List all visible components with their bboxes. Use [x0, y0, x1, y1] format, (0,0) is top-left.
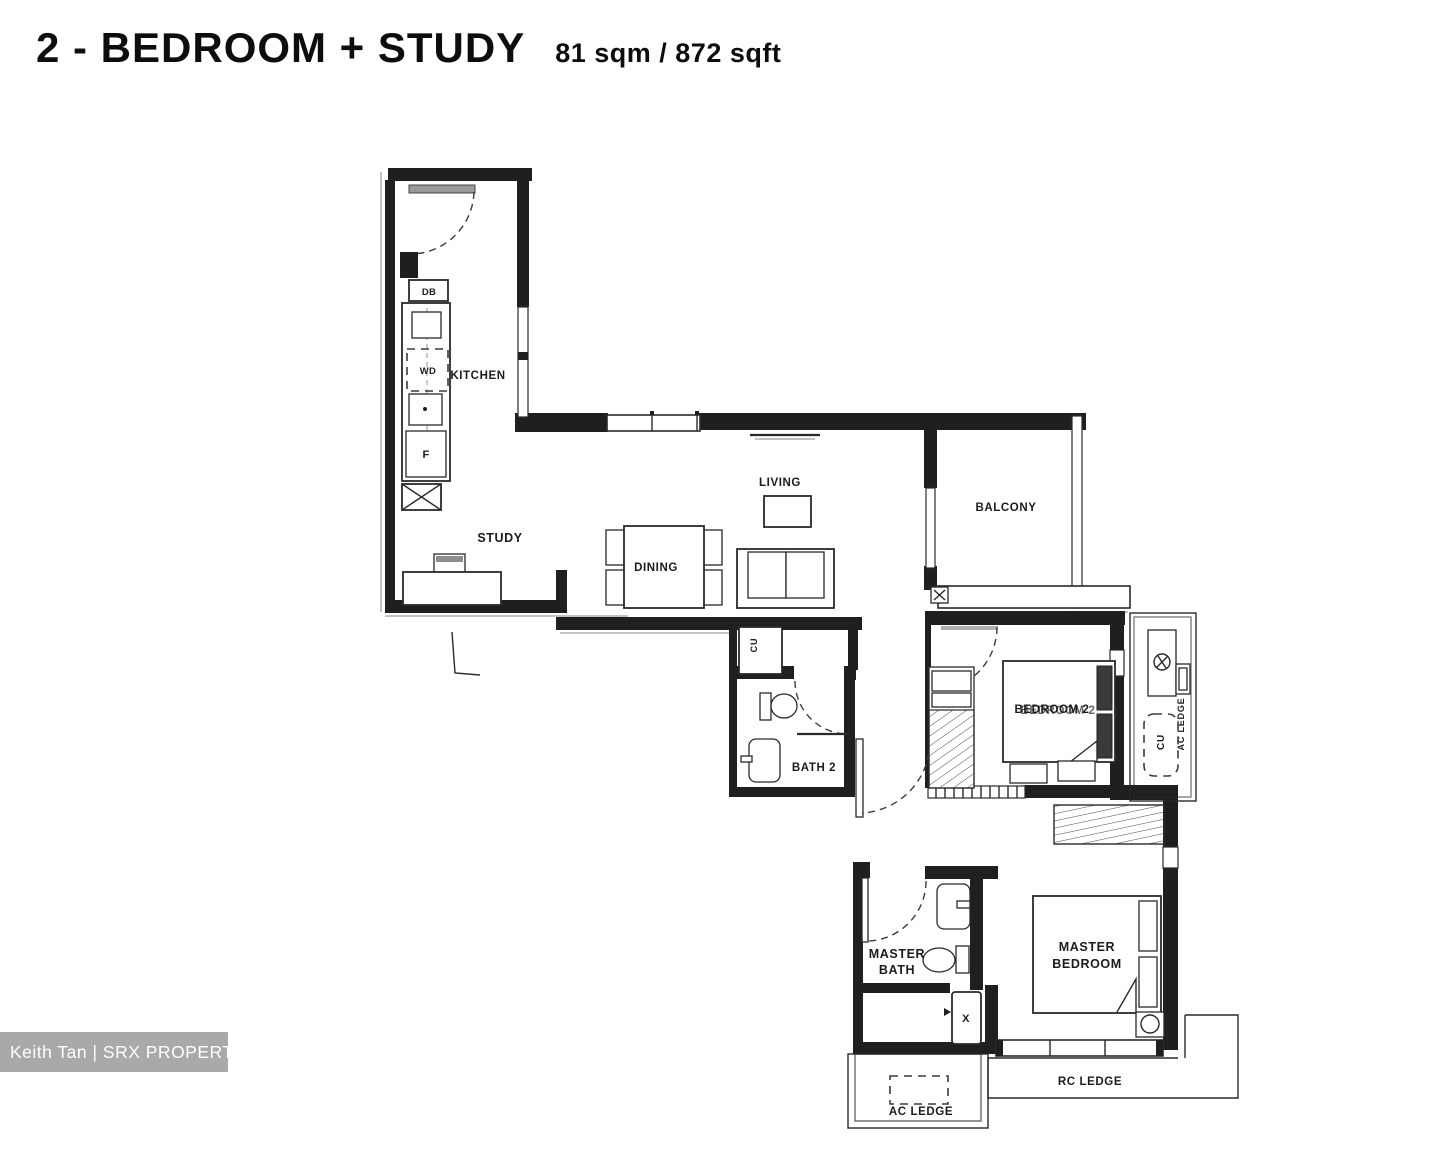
balcony-drain-icon: [931, 587, 948, 603]
entry-door-leaf: [409, 185, 475, 193]
master-bedroom-label-1: MASTER: [1059, 940, 1115, 954]
master-bed-icon: [1033, 896, 1161, 1013]
bedside-bench-icon: [1010, 764, 1047, 783]
ac-unit-icon: [1148, 630, 1176, 696]
cu-label: CU: [1156, 734, 1167, 750]
study-desk-icon: [403, 572, 501, 605]
master-bedroom-furniture: [1033, 805, 1164, 1037]
dining-chair-icon: [606, 530, 626, 565]
bath2-label: BATH 2: [792, 762, 836, 774]
water-heater-label: X: [962, 1013, 970, 1025]
planter-icon: [1136, 1012, 1164, 1037]
dining-chair-icon: [702, 570, 722, 605]
master-bath-label-1: MASTER: [869, 947, 925, 961]
foyer-cu-label: CU: [749, 638, 759, 653]
wardrobe-icon: [929, 667, 974, 788]
toilet-icon: [923, 946, 969, 973]
master-bath-door-leaf: [862, 878, 868, 942]
water-heater-icon: X: [944, 992, 981, 1044]
bedroom2-furniture: [929, 661, 1115, 788]
ac-ledge-label: AC LEDGE: [889, 1106, 953, 1118]
kitchen-fixtures: [402, 280, 450, 510]
condensing-unit-icon: CU: [1144, 714, 1178, 776]
side-ac-ledge: AC LEDGE CU: [1130, 613, 1196, 801]
dining-label: DINING: [634, 562, 678, 574]
master-bath-label-2: BATH: [879, 963, 915, 977]
master-wardrobe-icon: [1054, 805, 1164, 844]
dining-chair-icon: [606, 570, 626, 605]
wd-label: WD: [420, 366, 436, 377]
rc-ledge-label: RC LEDGE: [1058, 1076, 1122, 1088]
fridge-label: F: [422, 449, 429, 461]
hall-door-leaf: [856, 739, 863, 817]
bath2-door-swing: [795, 681, 848, 734]
sofa-icon: [737, 549, 834, 608]
balcony-label: BALCONY: [975, 502, 1036, 514]
dining-chair-icon: [702, 530, 722, 565]
ac-socket-icon: [1176, 664, 1190, 694]
bedside-bench-icon: [1058, 761, 1095, 781]
living-furniture: [737, 496, 948, 608]
bedroom2-label: BEDROOM 2: [1014, 704, 1089, 716]
floor-plan-drawing: CU: [0, 0, 1440, 1175]
foyer-cabinet: CU: [739, 627, 782, 674]
floor-plan-page: 2 - BEDROOM + STUDY 81 sqm / 872 sqft: [0, 0, 1440, 1175]
hall-door-swing: [862, 741, 930, 813]
coffee-table-icon: [764, 496, 811, 527]
kitchen-label: KITCHEN: [450, 370, 505, 382]
boundary-step: [452, 632, 480, 675]
sink-icon: [937, 884, 970, 929]
db-label: DB: [422, 287, 436, 298]
study-furniture: [403, 554, 501, 605]
toilet-icon: [760, 693, 797, 720]
living-label: LIVING: [759, 477, 801, 489]
agent-watermark: Keith Tan | SRX PROPERTY: [0, 1032, 228, 1072]
kitchen-sink-icon: [412, 312, 441, 338]
sink-icon: [741, 739, 780, 782]
entry-door-swing: [412, 192, 474, 254]
master-bath-door-swing: [866, 881, 926, 941]
shaft-icon: [402, 484, 441, 510]
study-label: STUDY: [477, 531, 522, 545]
master-bedroom-label-2: BEDROOM: [1052, 957, 1121, 971]
